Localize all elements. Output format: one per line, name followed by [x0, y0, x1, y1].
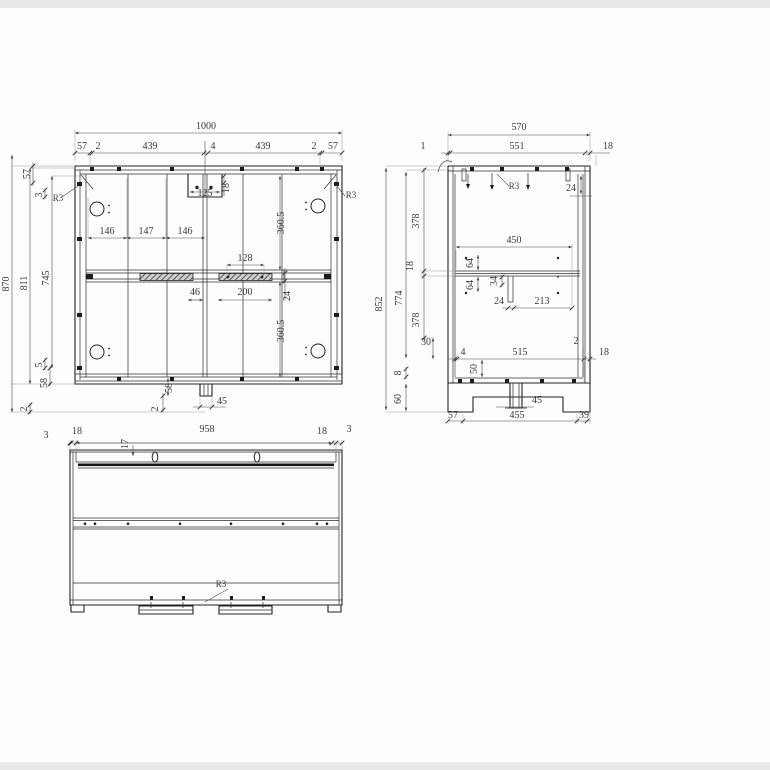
side-dim-2: 2 — [574, 336, 579, 347]
front-dim-46: 46 — [190, 287, 200, 298]
side-dim-60: 60 — [393, 394, 404, 404]
side-dim-4: 4 — [461, 347, 466, 358]
side-dim-57: 57 — [448, 410, 458, 421]
side-view-geometry — [438, 161, 590, 412]
front-view-geometry — [75, 0, 448, 396]
rail-front-edge — [78, 464, 334, 467]
front-dim-200: 200 — [238, 287, 253, 298]
front-dim-146-left: 146 — [100, 226, 115, 237]
plan-dim-3-right: 3 — [347, 424, 352, 435]
front-dim-top-57-left: 57 — [77, 141, 87, 152]
side-dim-852: 852 — [374, 297, 385, 312]
plan-dim-17: 17 — [120, 439, 131, 449]
cam-hole — [311, 344, 325, 358]
side-view-labels: 570 1 551 18 R3 24 852 774 378 18 378 30… — [374, 122, 613, 421]
side-dim-774: 774 — [394, 291, 405, 306]
side-dim-50: 50 — [469, 364, 480, 374]
front-dim-2-bottom-left: 2 — [19, 407, 30, 412]
cam-hole — [311, 199, 325, 213]
front-dim-2-bottom: 2 — [150, 407, 161, 412]
side-dim-1: 1 — [421, 141, 426, 152]
side-dim-64-upper: 64 — [465, 258, 476, 268]
side-dim-551: 551 — [510, 141, 525, 152]
side-dim-18-bottom: 18 — [599, 347, 609, 358]
side-dim-378-bottom: 378 — [411, 313, 422, 328]
plan-radius-label: R3 — [216, 579, 227, 589]
front-dim-128: 128 — [238, 253, 253, 264]
drawer-rail-left — [140, 274, 193, 281]
front-dim-745: 745 — [41, 271, 52, 286]
front-dim-57-side: 57 — [22, 169, 33, 179]
front-dim-811: 811 — [19, 276, 30, 291]
shelf-hole-dots — [465, 257, 559, 294]
cad-screenshot: 1000 57 2 439 4 439 2 57 870 811 745 57 … — [0, 0, 770, 770]
technical-drawing: 1000 57 2 439 4 439 2 57 870 811 745 57 … — [0, 0, 770, 770]
side-dim-64-lower: 64 — [465, 280, 476, 290]
screw-dots — [84, 522, 329, 525]
front-dim-overall-height: 870 — [1, 277, 12, 292]
front-dim-5: 5 — [34, 363, 45, 368]
side-dim-45: 45 — [532, 395, 542, 406]
side-dim-378-top: 378 — [411, 214, 422, 229]
slot-hole — [254, 452, 260, 462]
front-view-labels: 1000 57 2 439 4 439 2 57 870 811 745 57 … — [1, 121, 357, 412]
side-dim-39: 39 — [579, 410, 589, 421]
plan-view-geometry — [70, 450, 342, 614]
front-dim-125: 125 — [198, 188, 213, 199]
side-dim-450: 450 — [507, 235, 522, 246]
front-dim-overall-width: 1000 — [196, 121, 216, 132]
front-dim-58-bottom: 58 — [164, 383, 175, 393]
cam-hole — [90, 202, 104, 216]
front-dim-360-5-top: 360.5 — [276, 212, 287, 235]
front-dim-58-left: 58 — [39, 378, 50, 388]
side-dim-30: 30 — [421, 337, 431, 348]
side-dim-overall-depth: 570 — [512, 122, 527, 133]
side-dim-18-mid: 18 — [405, 261, 416, 271]
front-dim-146-right: 146 — [178, 226, 193, 237]
plan-view-labels: 3 18 958 18 3 17 R3 — [44, 424, 352, 589]
front-dim-3: 3 — [34, 193, 45, 198]
cam-hole — [90, 345, 104, 359]
front-radius-label-left: R3 — [53, 193, 64, 203]
front-dim-top-4: 4 — [211, 141, 216, 152]
front-dim-45: 45 — [217, 396, 227, 407]
side-dim-34: 34 — [489, 276, 500, 286]
plan-dim-958: 958 — [200, 424, 215, 435]
side-dim-24-top: 24 — [566, 183, 576, 194]
side-dim-455: 455 — [510, 410, 525, 421]
front-dim-top-439-right: 439 — [256, 141, 271, 152]
plan-dim-3-left: 3 — [44, 430, 49, 441]
front-dim-147: 147 — [139, 226, 154, 237]
slot-hole — [152, 452, 158, 462]
side-dim-213: 213 — [535, 296, 550, 307]
front-dim-top-57-right: 57 — [328, 141, 338, 152]
front-dim-18: 18 — [221, 183, 232, 193]
front-dim-top-2-left: 2 — [96, 141, 101, 152]
side-dim-24-mid: 24 — [494, 296, 504, 307]
front-dim-360-5-bottom: 360.5 — [276, 320, 287, 343]
side-dim-18-top: 18 — [603, 141, 613, 152]
side-radius-label: R3 — [509, 181, 520, 191]
plan-dim-18-left: 18 — [72, 426, 82, 437]
front-dim-top-2-right: 2 — [312, 141, 317, 152]
side-dim-515: 515 — [513, 347, 528, 358]
front-dim-24: 24 — [282, 291, 293, 301]
dimension-lines — [10, 130, 610, 602]
front-dim-top-439-left: 439 — [143, 141, 158, 152]
side-dim-8: 8 — [393, 371, 404, 376]
plan-dim-18-right: 18 — [317, 426, 327, 437]
front-radius-label-right: R3 — [346, 190, 357, 200]
